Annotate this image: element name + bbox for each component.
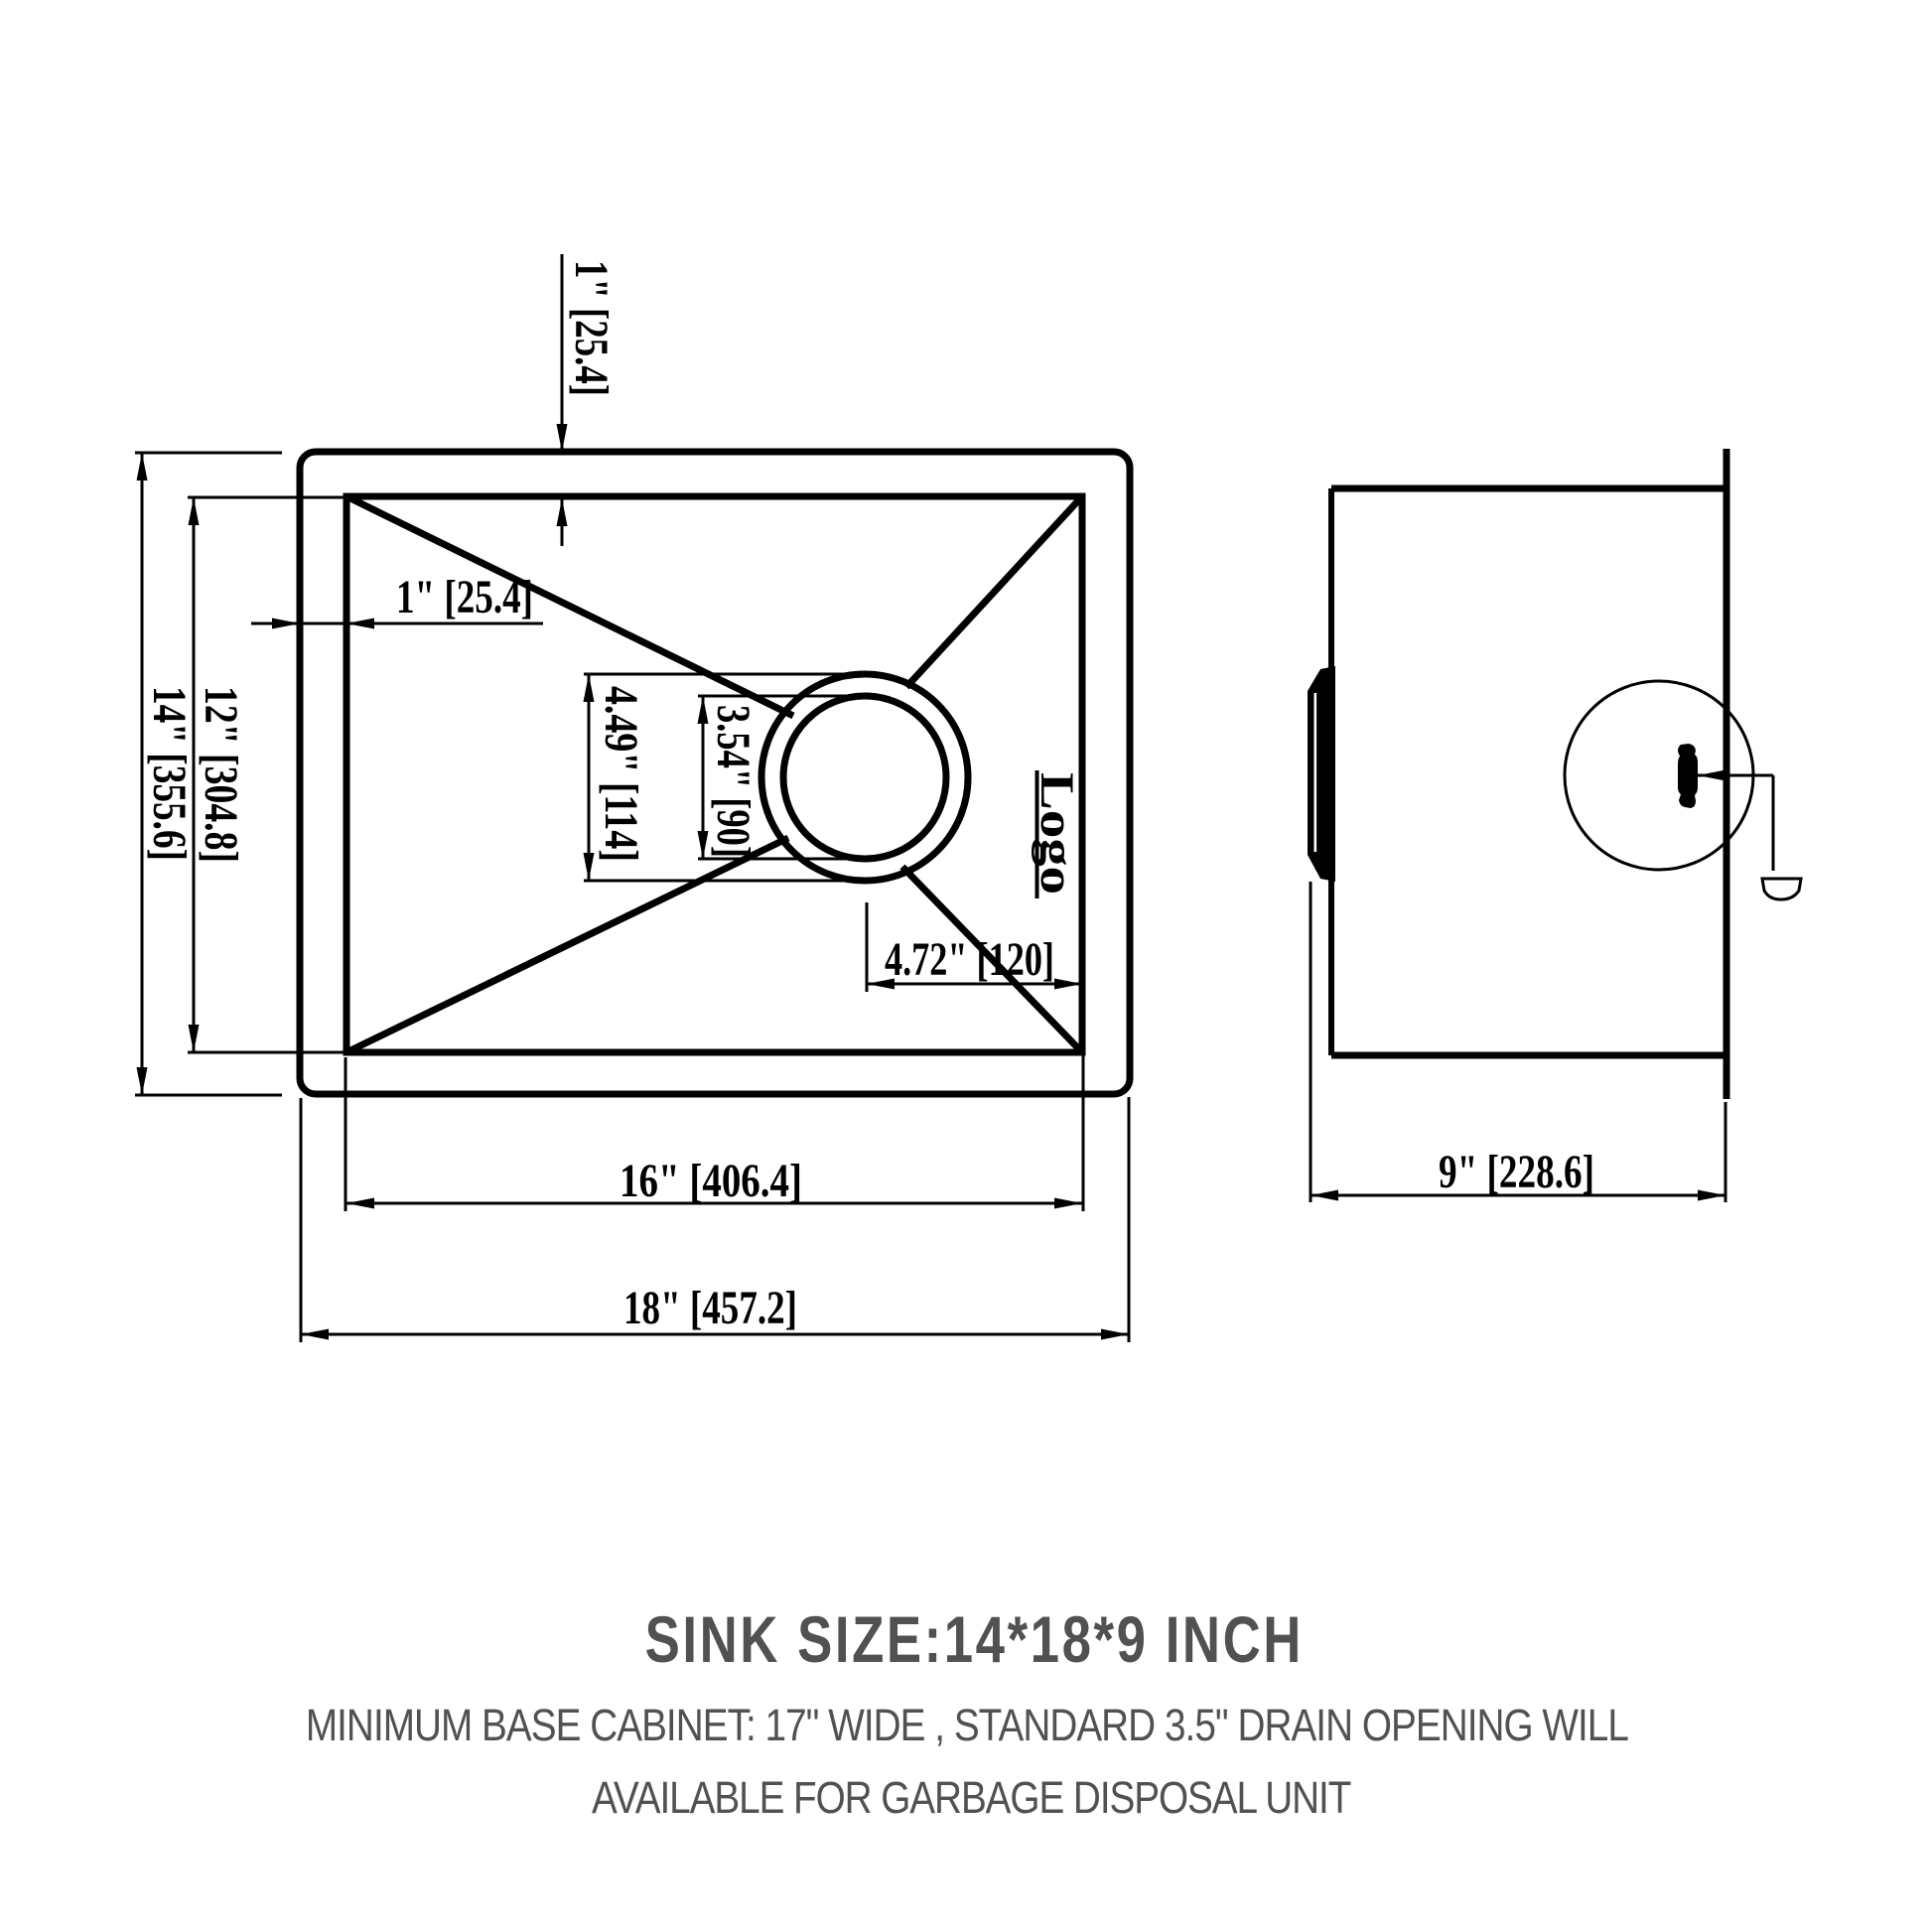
svg-text:9" [228.6]: 9" [228.6] xyxy=(1439,1146,1594,1198)
svg-text:12" [304.8]: 12" [304.8] xyxy=(195,686,247,863)
svg-text:SINK SIZE:14*18*9 INCH: SINK SIZE:14*18*9 INCH xyxy=(645,1602,1302,1676)
svg-text:14" [355.6]: 14" [355.6] xyxy=(143,686,196,861)
svg-text:18" [457.2]: 18" [457.2] xyxy=(623,1282,797,1334)
svg-text:AVAILABLE FOR GARBAGE DISPOSAL: AVAILABLE FOR GARBAGE DISPOSAL UNIT xyxy=(592,1772,1351,1822)
svg-text:MINIMUM BASE CABINET: 17" WIDE: MINIMUM BASE CABINET: 17" WIDE , STANDAR… xyxy=(306,1700,1629,1749)
svg-text:4.72" [120]: 4.72" [120] xyxy=(885,933,1054,986)
svg-text:1" [25.4]: 1" [25.4] xyxy=(565,260,618,396)
svg-text:16" [406.4]: 16" [406.4] xyxy=(620,1155,802,1207)
svg-text:4.49" [114]: 4.49" [114] xyxy=(595,686,647,862)
svg-text:3.54" [90]: 3.54" [90] xyxy=(707,705,759,858)
svg-text:1" [25.4]: 1" [25.4] xyxy=(396,571,533,623)
